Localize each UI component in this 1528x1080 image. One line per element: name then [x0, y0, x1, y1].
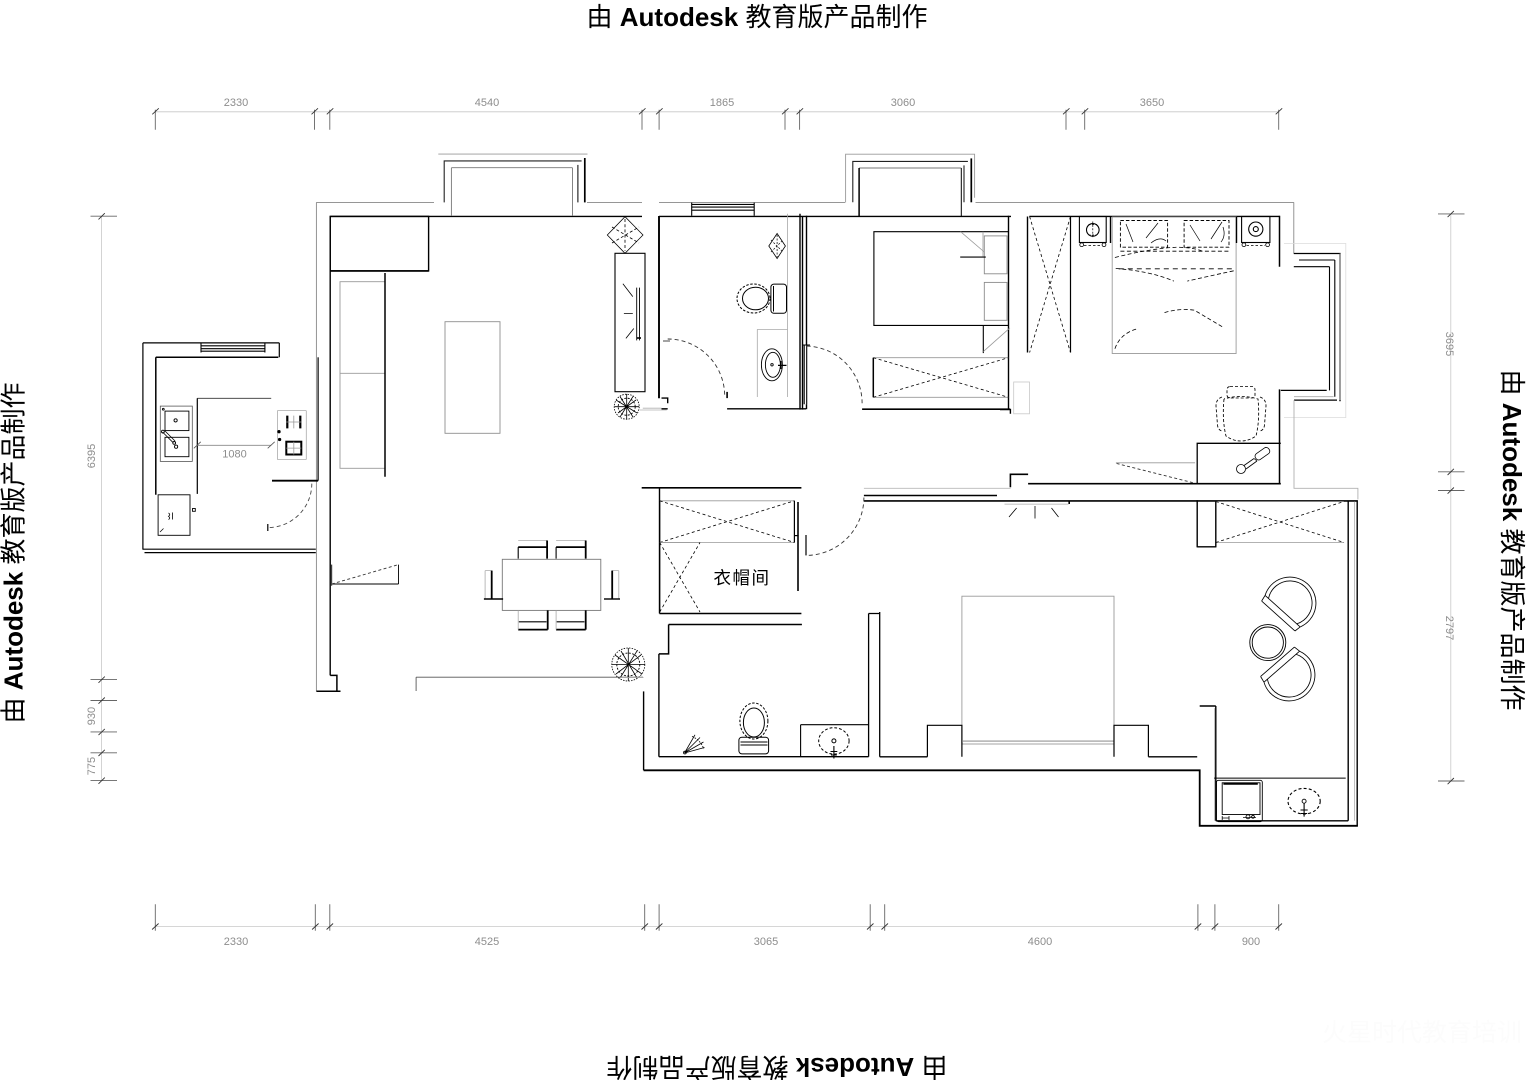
svg-text:由 Autodesk 教育版产品制作: 由 Autodesk 教育版产品制作: [607, 1052, 948, 1080]
svg-text:1080: 1080: [222, 449, 246, 461]
svg-text:火星时代教育培训: 火星时代教育培训: [1322, 1019, 1522, 1047]
svg-text:4540: 4540: [475, 97, 499, 109]
svg-text:3060: 3060: [891, 97, 915, 109]
svg-text:900: 900: [1242, 936, 1260, 948]
svg-text:2797: 2797: [1443, 616, 1455, 640]
svg-text:930: 930: [86, 707, 98, 725]
svg-text:由 Autodesk 教育版产品制作: 由 Autodesk 教育版产品制作: [587, 2, 928, 32]
svg-text:3065: 3065: [754, 936, 778, 948]
svg-text:4525: 4525: [475, 936, 499, 948]
svg-text:3650: 3650: [1140, 97, 1164, 109]
svg-text:2330: 2330: [224, 97, 248, 109]
svg-text:由 Autodesk 教育版产品制作: 由 Autodesk 教育版产品制作: [0, 383, 29, 724]
svg-text:4600: 4600: [1028, 936, 1052, 948]
svg-text:2330: 2330: [224, 936, 248, 948]
svg-text:775: 775: [86, 757, 98, 775]
svg-text:衣帽间: 衣帽间: [714, 568, 771, 588]
svg-text:6395: 6395: [86, 444, 98, 468]
svg-text:由 Autodesk 教育版产品制作: 由 Autodesk 教育版产品制作: [1497, 370, 1527, 711]
svg-text:1865: 1865: [710, 97, 734, 109]
svg-text:3695: 3695: [1443, 332, 1455, 356]
